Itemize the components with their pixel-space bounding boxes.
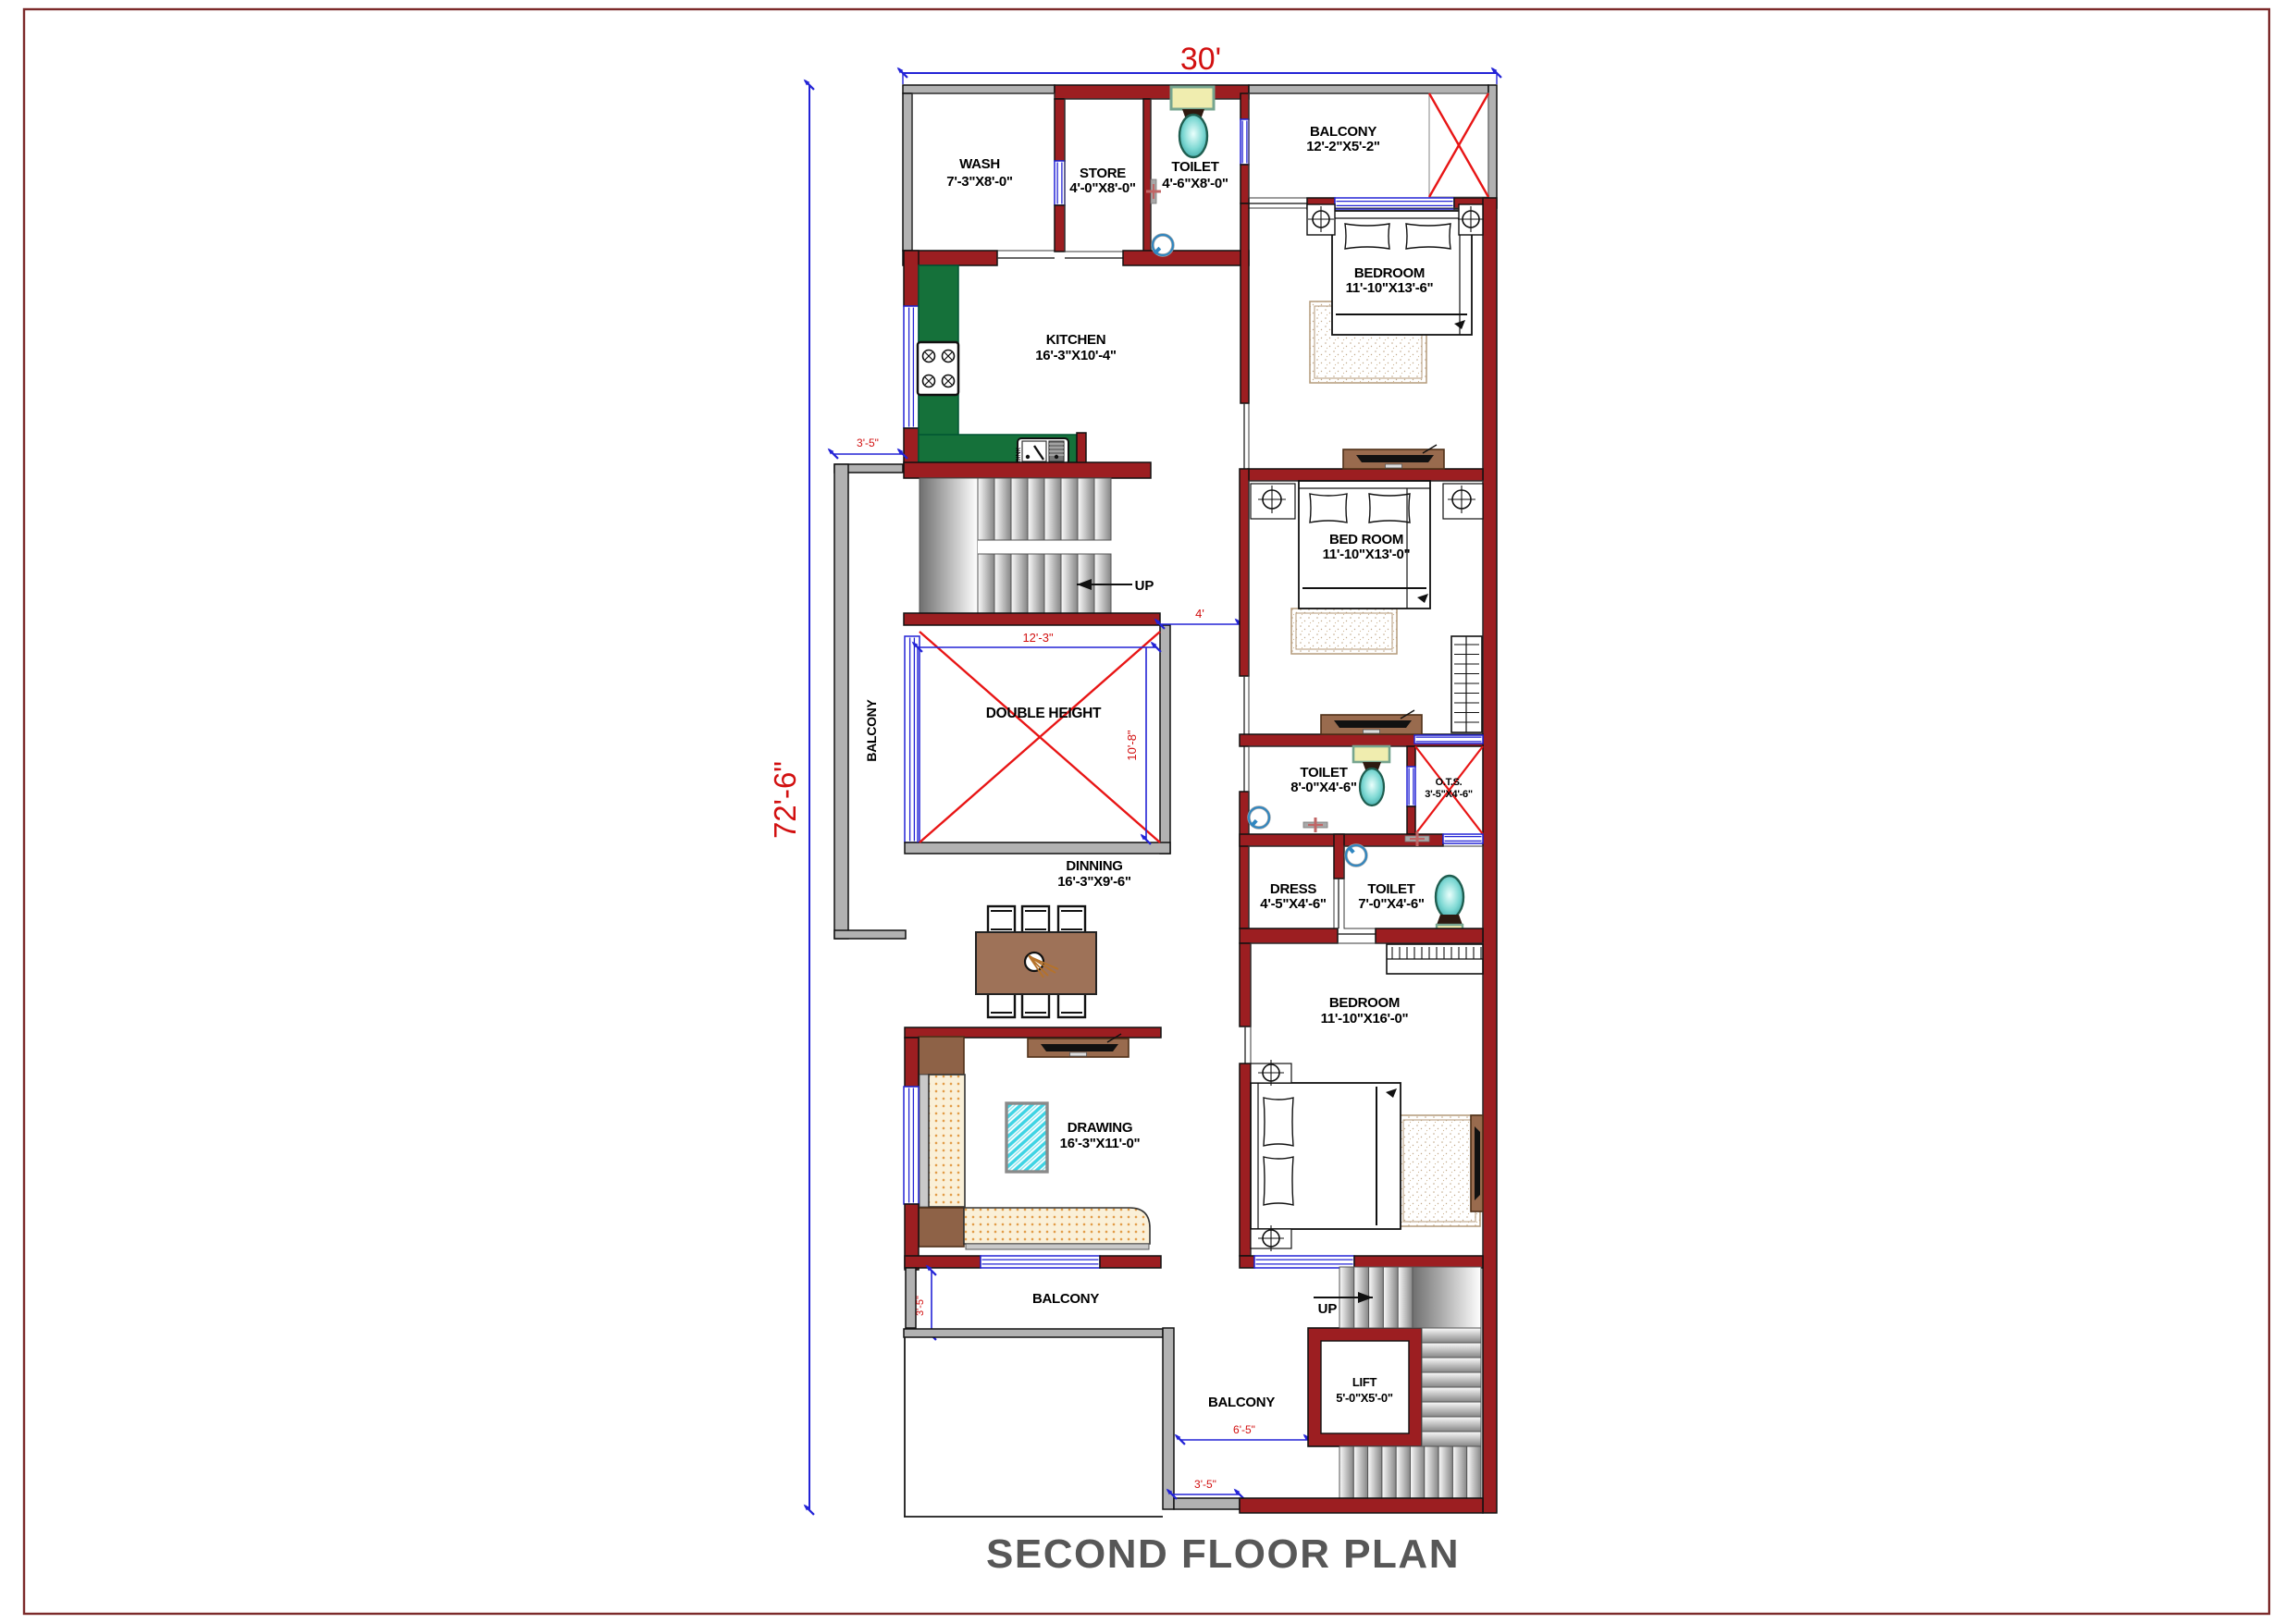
svg-text:3'-5": 3'-5" <box>1194 1478 1216 1491</box>
svg-text:BALCONY: BALCONY <box>864 698 879 761</box>
svg-text:BALCONY: BALCONY <box>1310 124 1376 140</box>
svg-text:11'-10"X16'-0": 11'-10"X16'-0" <box>1321 1011 1409 1027</box>
svg-text:3'-5": 3'-5" <box>915 1296 926 1316</box>
svg-text:SINK: SINK <box>1016 448 1022 463</box>
svg-text:10'-8": 10'-8" <box>1125 730 1139 761</box>
svg-text:16'-3"X10'-4": 16'-3"X10'-4" <box>1035 348 1117 363</box>
svg-text:4': 4' <box>1195 607 1204 621</box>
svg-text:5'-0"X5'-0": 5'-0"X5'-0" <box>1336 1391 1393 1405</box>
svg-text:16'-3"X9'-6": 16'-3"X9'-6" <box>1057 874 1131 890</box>
svg-text:DOUBLE HEIGHT: DOUBLE HEIGHT <box>986 706 1102 721</box>
svg-text:BEDROOM: BEDROOM <box>1354 265 1425 281</box>
svg-text:12'-2"X5'-2": 12'-2"X5'-2" <box>1306 139 1380 154</box>
svg-text:TOILET: TOILET <box>1171 159 1218 175</box>
svg-text:6'-5": 6'-5" <box>1233 1423 1255 1436</box>
svg-text:12'-3": 12'-3" <box>1022 631 1054 645</box>
svg-text:STORE: STORE <box>1080 166 1126 181</box>
svg-text:7'-0"X4'-6": 7'-0"X4'-6" <box>1358 896 1425 912</box>
svg-text:8'-0"X4'-6": 8'-0"X4'-6" <box>1290 780 1357 795</box>
svg-text:30': 30' <box>1180 42 1221 77</box>
svg-text:3'-5"X4'-6": 3'-5"X4'-6" <box>1425 789 1473 800</box>
svg-text:DRESS: DRESS <box>1270 881 1316 897</box>
svg-text:BED ROOM: BED ROOM <box>1329 532 1403 547</box>
svg-text:72'-6": 72'-6" <box>768 761 802 839</box>
svg-text:O.T.S.: O.T.S. <box>1436 777 1463 788</box>
svg-text:11'-10"X13'-0": 11'-10"X13'-0" <box>1323 547 1411 562</box>
svg-text:BEDROOM: BEDROOM <box>1329 995 1400 1011</box>
svg-text:LIFT: LIFT <box>1352 1375 1377 1389</box>
svg-text:16'-3"X11'-0": 16'-3"X11'-0" <box>1060 1136 1141 1151</box>
svg-text:3'-5": 3'-5" <box>857 436 879 449</box>
svg-text:BALCONY: BALCONY <box>1032 1291 1099 1307</box>
svg-text:TOILET: TOILET <box>1300 765 1347 781</box>
svg-text:BALCONY: BALCONY <box>1208 1395 1275 1410</box>
svg-text:11'-10"X13'-6": 11'-10"X13'-6" <box>1346 280 1434 296</box>
svg-text:4'-6"X8'-0": 4'-6"X8'-0" <box>1162 176 1228 191</box>
svg-text:WASH: WASH <box>959 156 1000 172</box>
svg-text:SECOND FLOOR PLAN: SECOND FLOOR PLAN <box>986 1531 1460 1577</box>
svg-text:TOILET: TOILET <box>1367 881 1414 897</box>
svg-text:DINNING: DINNING <box>1066 858 1122 874</box>
svg-text:4'-0"X8'-0": 4'-0"X8'-0" <box>1069 180 1136 196</box>
svg-text:4'-5"X4'-6": 4'-5"X4'-6" <box>1260 896 1327 912</box>
svg-text:KITCHEN: KITCHEN <box>1046 332 1106 348</box>
svg-text:UP: UP <box>1318 1301 1338 1317</box>
svg-text:7'-3"X8'-0": 7'-3"X8'-0" <box>946 174 1013 190</box>
svg-text:UP: UP <box>1135 578 1154 594</box>
svg-text:DRAWING: DRAWING <box>1068 1120 1132 1136</box>
